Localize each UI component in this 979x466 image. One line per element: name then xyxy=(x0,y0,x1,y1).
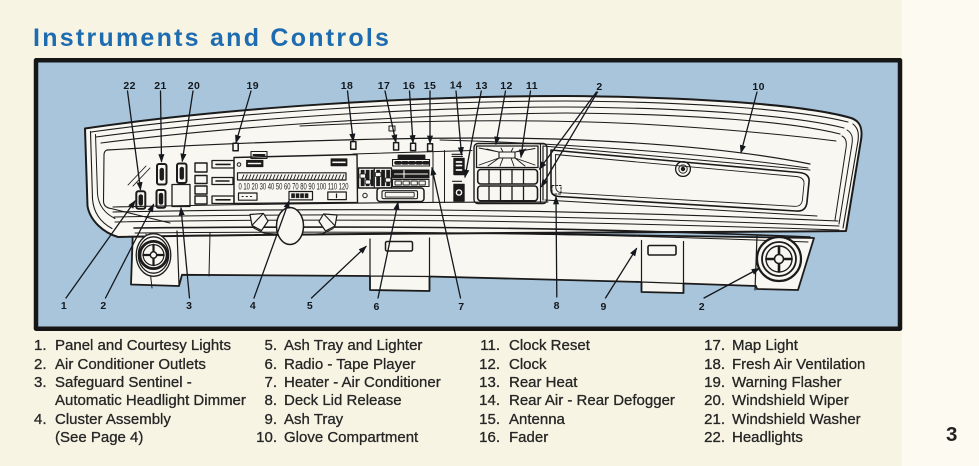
svg-text:10: 10 xyxy=(752,81,764,93)
svg-text:7: 7 xyxy=(458,301,464,313)
svg-text:4: 4 xyxy=(250,300,256,312)
svg-text:18: 18 xyxy=(341,80,353,92)
svg-text:22: 22 xyxy=(123,80,135,92)
svg-text:9: 9 xyxy=(600,301,606,313)
svg-text:8: 8 xyxy=(554,300,560,312)
svg-text:17: 17 xyxy=(378,80,390,92)
svg-text:15: 15 xyxy=(424,80,436,92)
svg-text:5: 5 xyxy=(307,300,313,312)
svg-text:2: 2 xyxy=(100,300,106,312)
svg-text:20: 20 xyxy=(188,80,200,92)
svg-text:3: 3 xyxy=(186,300,192,312)
svg-text:12: 12 xyxy=(500,80,512,92)
svg-text:1: 1 xyxy=(61,300,67,312)
svg-text:14: 14 xyxy=(450,79,462,91)
svg-text:16: 16 xyxy=(403,80,415,92)
svg-text:2: 2 xyxy=(596,81,602,93)
svg-text:2: 2 xyxy=(699,301,705,313)
svg-text:0 10 20 30 40 50 60 70 80 90 1: 0 10 20 30 40 50 60 70 80 90 100 110 120 xyxy=(239,182,349,193)
svg-text:6: 6 xyxy=(373,301,379,313)
svg-text:13: 13 xyxy=(475,80,487,92)
svg-text:21: 21 xyxy=(154,80,166,92)
svg-text:19: 19 xyxy=(246,80,258,92)
svg-text:11: 11 xyxy=(526,80,538,92)
